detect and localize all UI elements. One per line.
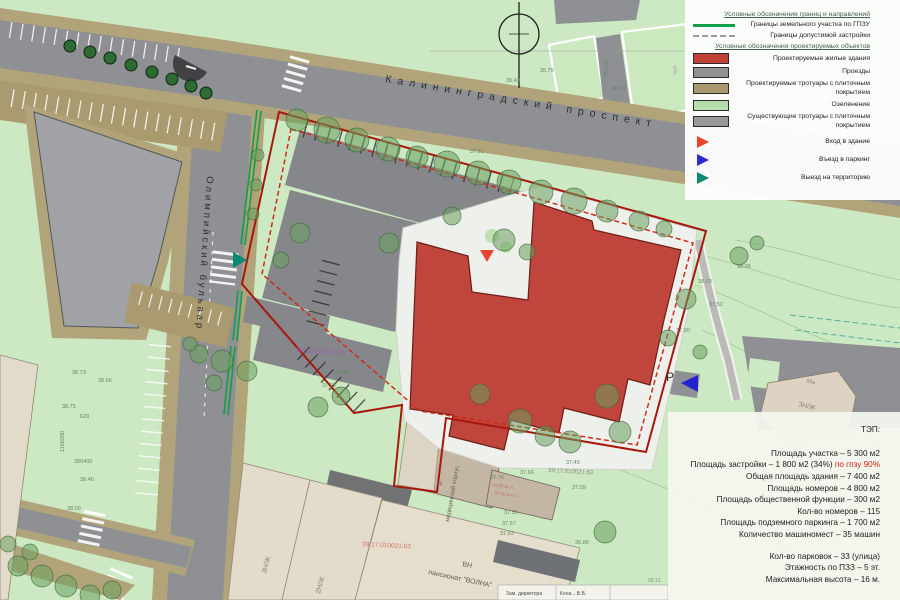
legend-row: Существующие тротуары с плиточным покрыт…: [693, 113, 870, 130]
tree-icon: [595, 384, 619, 408]
map-label: Зам. директора: [506, 591, 542, 597]
street-tree-icon: [166, 73, 178, 85]
legend-row: Проектируемые жилые здания: [693, 53, 870, 64]
tree-icon: [247, 208, 259, 220]
legend-objects-header: Условные обозначения проектируемых объек…: [693, 43, 870, 50]
tree-icon: [31, 565, 53, 587]
tree-icon: [609, 421, 631, 443]
tree-icon: [273, 252, 289, 268]
legend-row: Проезды: [693, 67, 870, 78]
tep-line: Площадь участка – 5 300 м2: [676, 448, 880, 460]
tree-icon: [596, 200, 618, 222]
map-label: 37.59: [504, 510, 518, 516]
tep-line: Площадь застройки – 1 800 м2 (34%) по гп…: [676, 459, 880, 471]
map-label: 1166200: [60, 431, 66, 452]
territory-exit-icon: [697, 172, 709, 184]
map-label: 37.63: [500, 531, 514, 537]
tep-line: Общая площадь здания – 7 400 м2: [676, 471, 880, 483]
legend-label: Проектируемые жилые здания: [735, 55, 870, 63]
street-tree-icon: [64, 40, 76, 52]
legend-label: Озеленение: [735, 101, 870, 109]
legend-row: Выезд на территорию: [693, 172, 870, 184]
tree-icon: [314, 117, 340, 143]
tree-icon: [493, 229, 515, 251]
tree-icon: [211, 350, 233, 372]
tree-icon: [183, 337, 197, 351]
legend-row: Озеленение: [693, 100, 870, 111]
map-label: 38.73: [72, 370, 86, 376]
tree-icon: [103, 581, 121, 599]
map-label: 38.66: [98, 378, 112, 384]
building-entrance-icon: [697, 136, 709, 148]
map-label: Кона... В.В.: [560, 591, 586, 597]
legend-label: Границы земельного участка по ГПЗУ: [741, 21, 870, 29]
street-tree-icon: [125, 59, 137, 71]
tree-icon: [561, 188, 587, 214]
map-label: 37.52: [709, 302, 723, 308]
tree-icon: [237, 361, 257, 381]
tree-icon: [406, 146, 428, 168]
legend-row: Проектируемые тротуары с плиточным покры…: [693, 80, 870, 97]
street-tree-icon: [84, 46, 96, 58]
map-label: 380400: [74, 459, 92, 465]
map-label: 38.09: [67, 506, 81, 512]
tree-icon: [535, 426, 555, 446]
legend-row: Границы допустимой застройки: [693, 32, 870, 40]
tep-title: ТЭП:: [676, 424, 880, 436]
map-label: Н: [437, 481, 442, 488]
tree-icon: [730, 247, 748, 265]
tep-line: Кол-во парковок – 33 (улица): [676, 551, 880, 563]
legend-label: Выезд на территорию: [715, 174, 870, 182]
map-label: 38.03: [698, 279, 712, 285]
tree-icon: [470, 384, 490, 404]
tep-panel: ТЭП: Площадь участка – 5 300 м2Площадь з…: [668, 412, 900, 600]
legend-label: Вход в здание: [715, 138, 870, 146]
dashed-line-swatch: [693, 35, 735, 37]
map-label: 38.46: [80, 477, 94, 483]
tree-icon: [290, 223, 310, 243]
green-line-swatch: [693, 24, 735, 27]
map-label: 35.79: [540, 68, 554, 74]
tep-line: Площадь номеров – 4 800 м2: [676, 483, 880, 495]
tree-icon: [0, 536, 16, 552]
tree-icon: [434, 151, 460, 177]
tree-icon: [529, 180, 553, 204]
map-label: P: [666, 370, 674, 384]
street-tree-icon: [104, 52, 116, 64]
legend-panel: Условные обозначения границ и направлени…: [685, 0, 900, 200]
map-label: 629: [80, 414, 89, 420]
tree-icon: [443, 207, 461, 225]
map-label: 37.09: [572, 485, 586, 491]
map-label: 38.75: [62, 404, 76, 410]
tree-icon: [594, 521, 616, 543]
legend-label: Проезды: [735, 68, 870, 76]
map-label: 38.06: [334, 370, 348, 376]
legend-row: Въезд в паркинг: [693, 154, 870, 166]
tree-icon: [750, 236, 764, 250]
tree-icon: [660, 330, 676, 346]
legend-borders-list: Границы земельного участка по ГПЗУГраниц…: [693, 21, 870, 40]
map-label: 37.66: [520, 470, 534, 476]
tep-line: Кол-во номеров – 115: [676, 506, 880, 518]
tree-icon: [676, 289, 696, 309]
legend-row: Вход в здание: [693, 136, 870, 148]
legend-borders-header: Условные обозначения границ и направлени…: [693, 11, 870, 18]
map-label: 38.21: [612, 86, 626, 92]
tree-icon: [286, 109, 308, 131]
tree-icon: [308, 397, 328, 417]
map-label: 37.90: [676, 328, 690, 334]
tree-icon: [22, 544, 38, 560]
map-label: 37.93: [322, 383, 336, 389]
greenery-swatch: [693, 100, 729, 111]
tep-extra-indicators: Кол-во парковок – 33 (улица)Этажность по…: [676, 551, 880, 586]
tree-icon: [250, 179, 262, 191]
map-label: 36.86: [575, 540, 589, 546]
tree-icon: [376, 137, 400, 161]
map-label: 37.76: [490, 475, 504, 481]
map-label: 35.43: [506, 78, 520, 84]
tree-icon: [8, 556, 28, 576]
parking-entrance-icon: [697, 154, 709, 166]
tree-icon: [693, 345, 707, 359]
tree-icon: [55, 575, 77, 597]
tree-icon: [656, 221, 672, 237]
tree-icon: [519, 244, 535, 260]
site-plan-page: Калининградский проспектОлимпийский буль…: [0, 0, 900, 600]
legend-label: Границы допустимой застройки: [741, 32, 870, 40]
existing-sidewalk-swatch: [693, 116, 729, 127]
tree-icon: [497, 170, 521, 194]
street-tree-icon: [146, 66, 158, 78]
tep-line: Количество машиномест – 35 машин: [676, 529, 880, 541]
legend-row: Границы земельного участка по ГПЗУ: [693, 21, 870, 29]
street-tree-icon: [200, 87, 212, 99]
map-label: 06.12.: [648, 578, 662, 584]
tree-icon: [466, 161, 490, 185]
map-label: 37.45: [566, 460, 580, 466]
legend-markers-list: Вход в зданиеВъезд в паркингВыезд на тер…: [693, 136, 870, 184]
tree-icon: [345, 128, 369, 152]
tree-icon: [332, 387, 350, 405]
tree-icon: [508, 409, 532, 433]
tree-icon: [559, 431, 581, 453]
tree-icon: [252, 149, 264, 161]
map-label: 38.06: [737, 264, 751, 270]
map-label: 37.31: [470, 149, 484, 155]
tep-line: Площадь общественной функции – 300 м2: [676, 494, 880, 506]
tep-main-indicators: Площадь участка – 5 300 м2Площадь застро…: [676, 448, 880, 541]
tep-accent: по гпзу 90%: [833, 460, 880, 469]
tree-icon: [206, 375, 222, 391]
tree-icon: [629, 211, 649, 231]
legend-label: Существующие тротуары с плиточным покрыт…: [735, 113, 870, 130]
legend-label: Проектируемые тротуары с плиточным покры…: [735, 80, 870, 97]
tree-icon: [379, 233, 399, 253]
street-tree-icon: [185, 80, 197, 92]
new-sidewalk-swatch: [693, 83, 729, 94]
driveway-swatch: [693, 67, 729, 78]
legend-label: Въезд в паркинг: [715, 156, 870, 164]
legend-objects-list: Проектируемые жилые зданияПроездыПроекти…: [693, 53, 870, 130]
tep-line: Максимальная высота – 16 м.: [676, 574, 880, 586]
tep-line: Этажность по ПЗЗ – 5 эт.: [676, 562, 880, 574]
red-building-swatch: [693, 53, 729, 64]
tep-line: Площадь подземного паркинга – 1 700 м2: [676, 517, 880, 529]
map-label: 37.57: [502, 521, 516, 527]
